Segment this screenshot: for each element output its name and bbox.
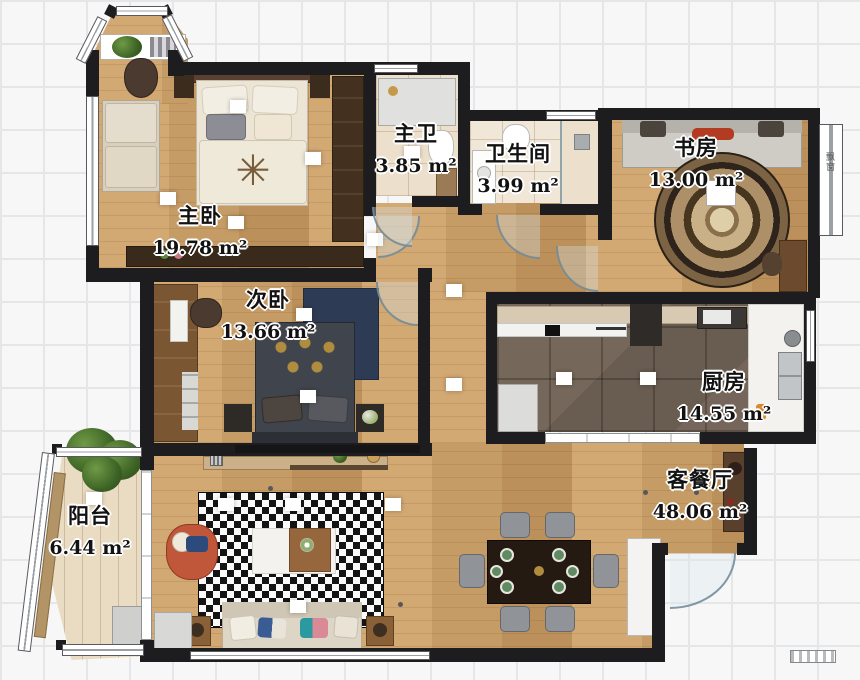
cooktop[interactable] <box>545 325 560 336</box>
ceiling-light <box>446 284 462 297</box>
room-area: 3.85 m² <box>375 155 456 177</box>
bay-window <box>819 124 843 236</box>
window <box>546 111 596 120</box>
kitchen-tall-cabinet[interactable] <box>630 304 662 346</box>
wall <box>168 62 470 75</box>
wall <box>700 432 816 444</box>
room-label-second-bedroom: 次卧 13.66 m² <box>221 284 316 343</box>
balcony-sliding-door[interactable] <box>141 470 152 640</box>
wall <box>652 543 668 555</box>
wardrobe[interactable] <box>332 76 364 242</box>
bay-window-label: 飘窗 <box>824 152 837 172</box>
plate <box>500 580 514 594</box>
desk-chair[interactable] <box>190 298 222 328</box>
window <box>190 651 430 660</box>
room-name: 次卧 <box>221 284 316 314</box>
shower-head <box>388 86 398 96</box>
dining-chair[interactable] <box>593 554 619 588</box>
dining-chair[interactable] <box>545 512 575 538</box>
window <box>116 6 168 16</box>
wall <box>486 292 816 304</box>
room-name: 阳台 <box>49 500 130 530</box>
room-area: 3.99 m² <box>477 175 558 197</box>
master-bed-duvet: ✳ <box>199 140 307 204</box>
nightstand-plant <box>362 410 378 424</box>
dining-chair[interactable] <box>500 512 530 538</box>
wall <box>418 281 430 456</box>
shelf-unit[interactable] <box>182 372 198 430</box>
room-label-balcony: 阳台 6.44 m² <box>49 500 130 559</box>
window <box>374 64 418 73</box>
fridge[interactable] <box>498 384 538 432</box>
kitchen-counter-white <box>497 323 627 337</box>
study-pillow <box>758 121 784 137</box>
range-hood-light <box>703 310 731 324</box>
sofa-pillow <box>229 615 257 642</box>
room-area: 48.06 m² <box>653 501 748 523</box>
dining-chair[interactable] <box>545 606 575 632</box>
room-area: 14.55 m² <box>677 403 772 425</box>
kitchen-sink[interactable] <box>778 352 802 400</box>
side-table-speaker <box>373 623 387 637</box>
tv[interactable] <box>235 445 420 453</box>
wall <box>486 292 497 444</box>
ceiling-light <box>446 378 462 391</box>
plate <box>490 565 503 578</box>
room-label-kitchen: 厨房 14.55 m² <box>677 366 772 425</box>
downlight <box>268 486 273 491</box>
ceiling-light <box>218 498 234 511</box>
room-label-study: 书房 13.00 m² <box>649 132 744 191</box>
radiator <box>790 650 836 663</box>
room-name: 主卫 <box>375 118 456 148</box>
wall <box>598 108 612 240</box>
plate <box>552 548 566 562</box>
wall <box>604 108 820 120</box>
balcony-window <box>62 644 144 656</box>
floor-plan: ✳ <box>0 0 860 680</box>
nightstand[interactable] <box>224 404 252 432</box>
ceiling-light <box>230 100 246 113</box>
room-name: 客餐厅 <box>653 464 748 494</box>
room-label-master-bath: 主卫 3.85 m² <box>375 118 456 177</box>
plate <box>566 565 579 578</box>
wall <box>486 432 545 444</box>
master-bed-pillow <box>254 114 292 140</box>
room-name: 厨房 <box>677 366 772 396</box>
plate <box>552 580 566 594</box>
study-desk[interactable] <box>779 240 807 292</box>
second-bed-pillow <box>261 394 303 423</box>
ceiling-light <box>290 600 306 613</box>
counter-utensil <box>596 327 626 330</box>
nook-plant <box>112 36 142 58</box>
armchair-pillow <box>186 536 208 552</box>
master-bed-pillow <box>206 114 246 140</box>
bedroom-sofa-cushion <box>105 103 157 143</box>
balcony-plant <box>82 456 122 492</box>
bedroom-sofa-cushion <box>105 146 157 188</box>
kitchen-sliding-door[interactable] <box>545 433 700 443</box>
dressing-chair[interactable] <box>124 58 158 98</box>
sofa-pillow <box>333 615 359 639</box>
room-area: 19.78 m² <box>153 237 248 259</box>
study-chair[interactable] <box>762 252 782 276</box>
room-area: 13.66 m² <box>221 321 316 343</box>
wall <box>96 268 374 282</box>
wall <box>418 268 432 282</box>
room-area: 6.44 m² <box>49 537 130 559</box>
side-table-speaker <box>190 623 204 637</box>
wall <box>364 62 376 216</box>
wall <box>540 204 612 215</box>
ceiling-light <box>300 390 316 403</box>
wall <box>652 543 665 662</box>
room-label-bathroom: 卫生间 3.99 m² <box>477 138 558 197</box>
master-bed-pillow <box>251 85 298 115</box>
room-name: 卫生间 <box>477 138 558 168</box>
armchair[interactable] <box>166 524 218 580</box>
room-name: 书房 <box>649 132 744 162</box>
ceiling-light <box>640 372 656 385</box>
nightstand[interactable] <box>310 72 330 98</box>
desk-papers <box>170 300 188 342</box>
sofa-pillow <box>300 618 328 638</box>
wall <box>458 62 470 215</box>
plate <box>500 548 514 562</box>
door-swing-entry[interactable] <box>670 553 736 609</box>
room-area: 13.00 m² <box>649 169 744 191</box>
robot-vacuum[interactable] <box>784 330 801 347</box>
wall <box>140 281 154 470</box>
downlight <box>398 602 403 607</box>
balcony-window <box>56 447 142 457</box>
room-label-master-bedroom: 主卧 19.78 m² <box>153 200 248 259</box>
console-shelf-dark <box>290 465 388 470</box>
shower-head <box>574 134 590 150</box>
window <box>86 96 99 246</box>
wall <box>458 204 482 215</box>
dining-chair[interactable] <box>459 554 485 588</box>
room-label-living-dining: 客餐厅 48.06 m² <box>653 464 748 523</box>
ceiling-light <box>385 498 401 511</box>
table-branch-decor <box>300 538 314 552</box>
downlight <box>643 490 648 495</box>
sofa-pillow <box>257 617 286 639</box>
table-centerpiece <box>534 566 544 576</box>
room-name: 主卧 <box>153 200 248 230</box>
window <box>806 310 815 362</box>
dining-chair[interactable] <box>500 606 530 632</box>
wall <box>86 244 99 282</box>
ceiling-light <box>305 152 321 165</box>
ceiling-light <box>285 498 301 511</box>
ceiling-light <box>556 372 572 385</box>
